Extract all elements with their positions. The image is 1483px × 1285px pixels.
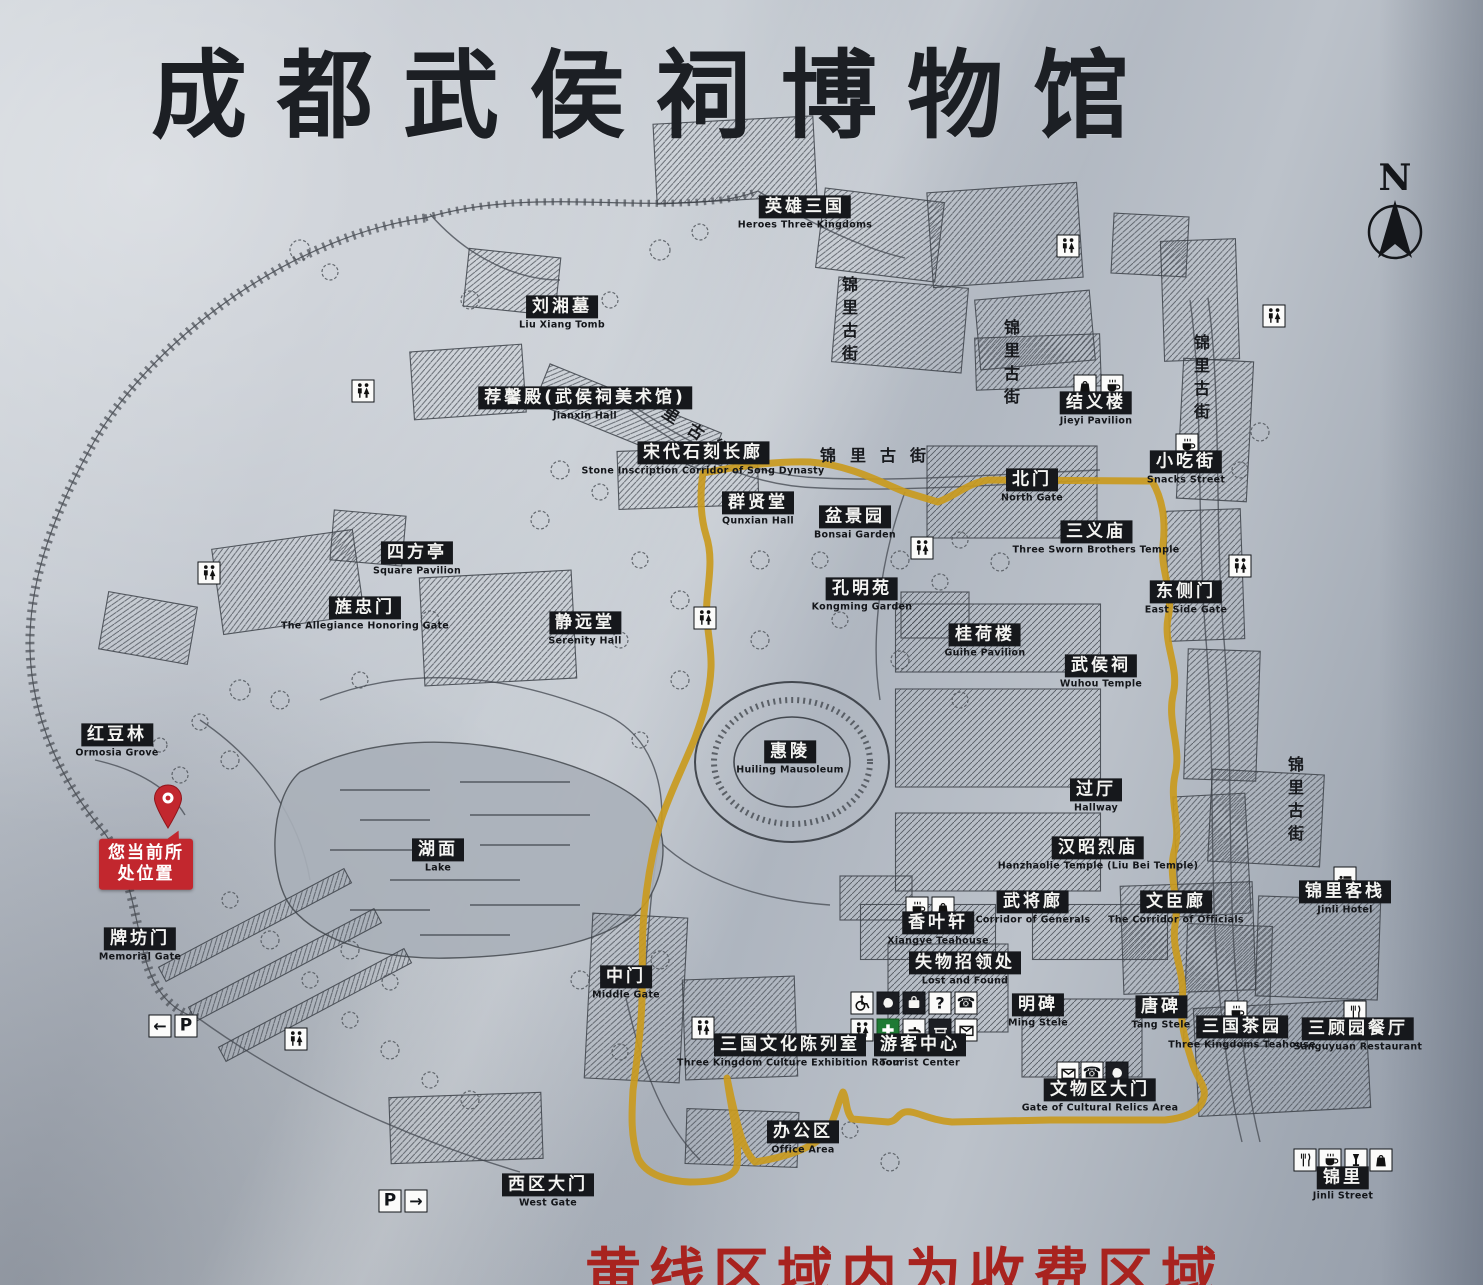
map-label-en: Lost and Found: [909, 976, 1021, 987]
map-label-zh: 英雄三国: [759, 195, 851, 218]
street-name-label: 锦里古街: [820, 442, 940, 466]
map-label: 结义楼Jieyi Pavilion: [1060, 391, 1133, 426]
map-sign: 成都武侯祠博物馆 N 英雄三国Heroes Three Kingdoms刘湘墓L…: [0, 0, 1483, 1285]
compass-north-label: N: [1362, 160, 1428, 196]
map-label-zh: 孔明苑: [826, 577, 898, 600]
restroom-icon: [198, 562, 221, 585]
map-label-en: The Allegiance Honoring Gate: [281, 621, 449, 632]
you-are-here-line2: 处位置: [108, 864, 184, 885]
map-label-en: Office Area: [767, 1145, 839, 1156]
map-label: 文物区大门Gate of Cultural Relics Area: [1022, 1078, 1179, 1113]
you-are-here-badge: 您当前所 处位置: [99, 839, 193, 890]
map-label-en: Hanzhaolie Temple (Liu Bei Temple): [998, 861, 1199, 872]
map-label-zh: 荐馨殿(武侯祠美术馆): [478, 386, 692, 409]
map-label-zh: 文物区大门: [1044, 1078, 1156, 1101]
street-name-label: 锦里古街: [998, 319, 1022, 411]
map-label: 盆景园Bonsai Garden: [814, 505, 896, 540]
map-label-en: Kongming Garden: [812, 602, 913, 613]
map-label-zh: 红豆林: [81, 723, 153, 746]
map-label-zh: 四方亭: [381, 541, 453, 564]
map-label-zh: 旌忠门: [329, 596, 401, 619]
map-label-zh: 牌坊门: [104, 927, 176, 950]
map-label-zh: 西区大门: [502, 1173, 594, 1196]
map-label-zh: 三国茶园: [1196, 1015, 1288, 1038]
map-label-zh: 三义庙: [1060, 520, 1132, 543]
map-label-zh: 武将廊: [997, 890, 1069, 913]
restroom-icon: [911, 537, 934, 560]
map-label: 北门North Gate: [1001, 468, 1063, 503]
map-label: 牌坊门Memorial Gate: [99, 927, 181, 962]
map-label-en: The Corridor of Officials: [1108, 915, 1244, 926]
map-label-zh: 小吃街: [1150, 450, 1222, 473]
restroom-icon: [1263, 305, 1286, 328]
map-label: 汉昭烈庙Hanzhaolie Temple (Liu Bei Temple): [998, 836, 1199, 871]
restroom-icon: [285, 1028, 308, 1051]
map-label-en: Jieyi Pavilion: [1060, 416, 1133, 427]
restroom-icon: [1057, 235, 1080, 258]
map-label: 四方亭Square Pavilion: [373, 541, 461, 576]
map-label: 旌忠门The Allegiance Honoring Gate: [281, 596, 449, 631]
map-label-en: Heroes Three Kingdoms: [738, 220, 873, 231]
map-label: 游客中心Tourist Center: [874, 1033, 966, 1068]
map-label-en: Stone Inscription Corridor of Song Dynas…: [581, 466, 824, 477]
map-label: 锦里Jinli Street: [1313, 1166, 1373, 1201]
street-name-label: 锦里古街: [1282, 756, 1306, 848]
parking-icon: P: [379, 1190, 402, 1213]
map-label: 孔明苑Kongming Garden: [812, 577, 913, 612]
map-label-en: West Gate: [502, 1198, 594, 1209]
map-label: 武侯祠Wuhou Temple: [1060, 654, 1142, 689]
sign-title: 成都武侯祠博物馆: [151, 18, 1159, 157]
map-label: 刘湘墓Liu Xiang Tomb: [519, 295, 605, 330]
map-label-en: Wuhou Temple: [1060, 679, 1142, 690]
map-label-en: Middle Gate: [592, 990, 660, 1001]
map-label-zh: 锦里客栈: [1299, 880, 1391, 903]
hand-icon: [877, 992, 900, 1015]
map-label: 过厅Hallway: [1070, 778, 1122, 813]
map-label-zh: 武侯祠: [1065, 654, 1137, 677]
map-label-en: Tourist Center: [874, 1058, 966, 1069]
map-label: 三国文化陈列室Three Kingdom Culture Exhibition …: [677, 1033, 903, 1068]
map-label-en: Memorial Gate: [99, 952, 181, 963]
map-label-zh: 东侧门: [1150, 580, 1222, 603]
map-label-zh: 三顾园餐厅: [1302, 1017, 1414, 1040]
compass-arrow-icon: [1362, 196, 1428, 266]
map-label-en: Jianxin Hall: [478, 411, 692, 422]
map-label-zh: 中门: [600, 965, 652, 988]
map-label: 失物招领处Lost and Found: [909, 951, 1021, 986]
map-label: 东侧门East Side Gate: [1145, 580, 1227, 615]
map-label: 香叶轩Xiangye Teahouse: [887, 911, 989, 946]
restroom-icon: [352, 380, 375, 403]
map-label: 宋代石刻长廊Stone Inscription Corridor of Song…: [581, 441, 824, 476]
map-label: 小吃街Snacks Street: [1147, 450, 1225, 485]
map-label-zh: 汉昭烈庙: [1052, 836, 1144, 859]
map-label-en: Qunxian Hall: [722, 516, 794, 527]
map-label: 文臣廊The Corridor of Officials: [1108, 890, 1244, 925]
map-label: 湖面Lake: [412, 838, 464, 873]
bag-icon: [903, 992, 926, 1015]
map-label-zh: 北门: [1006, 468, 1058, 491]
map-label-en: Jinli Hotel: [1299, 905, 1391, 916]
map-label-zh: 办公区: [767, 1120, 839, 1143]
map-label: 锦里客栈Jinli Hotel: [1299, 880, 1391, 915]
map-label-en: Three Kingdom Culture Exhibition Room: [677, 1058, 903, 1069]
map-label-zh: 文臣廊: [1140, 890, 1212, 913]
map-label-en: Gate of Cultural Relics Area: [1022, 1103, 1179, 1114]
map-label-en: Jinli Street: [1313, 1191, 1373, 1202]
map-label: 三顾园餐厅Sanguyuan Restaurant: [1294, 1017, 1423, 1052]
question-icon: ?: [929, 992, 952, 1015]
map-label-zh: 刘湘墓: [526, 295, 598, 318]
map-label: 英雄三国Heroes Three Kingdoms: [738, 195, 873, 230]
map-label-en: Ormosia Grove: [75, 748, 158, 759]
map-label-zh: 明碑: [1012, 993, 1064, 1016]
map-label: 西区大门West Gate: [502, 1173, 594, 1208]
map-label-zh: 香叶轩: [902, 911, 974, 934]
map-label-en: Xiangye Teahouse: [887, 936, 989, 947]
map-label: 中门Middle Gate: [592, 965, 660, 1000]
map-label-zh: 宋代石刻长廊: [637, 441, 769, 464]
arrow-right-icon: →: [405, 1190, 428, 1213]
map-label-zh: 失物招领处: [909, 951, 1021, 974]
map-label-zh: 静远堂: [549, 611, 621, 634]
phone-icon: ☎: [955, 992, 978, 1015]
restroom-icon: [694, 607, 717, 630]
map-label: 静远堂Serenity Hall: [548, 611, 621, 646]
map-label: 办公区Office Area: [767, 1120, 839, 1155]
map-label: 惠陵Huiling Mausoleum: [736, 740, 844, 775]
map-label-en: Serenity Hall: [548, 636, 621, 647]
map-label-zh: 桂荷楼: [949, 623, 1021, 646]
map-label-zh: 过厅: [1070, 778, 1122, 801]
map-label-en: Hallway: [1070, 803, 1122, 814]
map-label: 桂荷楼Guihe Pavilion: [945, 623, 1026, 658]
map-label-zh: 三国文化陈列室: [714, 1033, 866, 1056]
map-label: 武将廊Corridor of Generals: [976, 890, 1091, 925]
parking-icon: P: [175, 1015, 198, 1038]
map-label-en: Lake: [412, 863, 464, 874]
map-label-en: Bonsai Garden: [814, 530, 896, 541]
street-name-label: 锦里古街: [836, 276, 860, 368]
arrow-left-icon: ←: [149, 1015, 172, 1038]
map-label-zh: 盆景园: [819, 505, 891, 528]
map-label-zh: 惠陵: [764, 740, 816, 763]
restroom-icon: [1229, 555, 1252, 578]
map-label: 红豆林Ormosia Grove: [75, 723, 158, 758]
you-are-here-line1: 您当前所: [108, 843, 184, 864]
map-label-en: Corridor of Generals: [976, 915, 1091, 926]
map-label-zh: 群贤堂: [722, 491, 794, 514]
wheelchair-icon: [851, 992, 874, 1015]
fee-area-notice: 黄线区域内为收费区域: [585, 1230, 1225, 1285]
map-label-en: Three Sworn Brothers Temple: [1012, 545, 1179, 556]
you-are-here-pin-icon: [153, 784, 183, 830]
compass: N: [1362, 160, 1428, 270]
map-label-en: Ming Stele: [1008, 1018, 1068, 1029]
map-label-en: Guihe Pavilion: [945, 648, 1026, 659]
map-artwork: [0, 0, 1483, 1285]
map-label: 三义庙Three Sworn Brothers Temple: [1012, 520, 1179, 555]
map-label: 荐馨殿(武侯祠美术馆)Jianxin Hall: [478, 386, 692, 421]
map-label-zh: 游客中心: [874, 1033, 966, 1056]
map-label: 明碑Ming Stele: [1008, 993, 1068, 1028]
map-label-en: Square Pavilion: [373, 566, 461, 577]
map-label: 群贤堂Qunxian Hall: [722, 491, 794, 526]
map-label-zh: 湖面: [412, 838, 464, 861]
map-label-en: Sanguyuan Restaurant: [1294, 1042, 1423, 1053]
map-label-en: North Gate: [1001, 493, 1063, 504]
map-label-en: East Side Gate: [1145, 605, 1227, 616]
map-label-en: Snacks Street: [1147, 475, 1225, 486]
map-label-en: Huiling Mausoleum: [736, 765, 844, 776]
street-name-label: 锦里古街: [1188, 334, 1212, 426]
map-label-en: Liu Xiang Tomb: [519, 320, 605, 331]
map-label-zh: 锦里: [1317, 1166, 1369, 1189]
map-label-zh: 结义楼: [1060, 391, 1132, 414]
